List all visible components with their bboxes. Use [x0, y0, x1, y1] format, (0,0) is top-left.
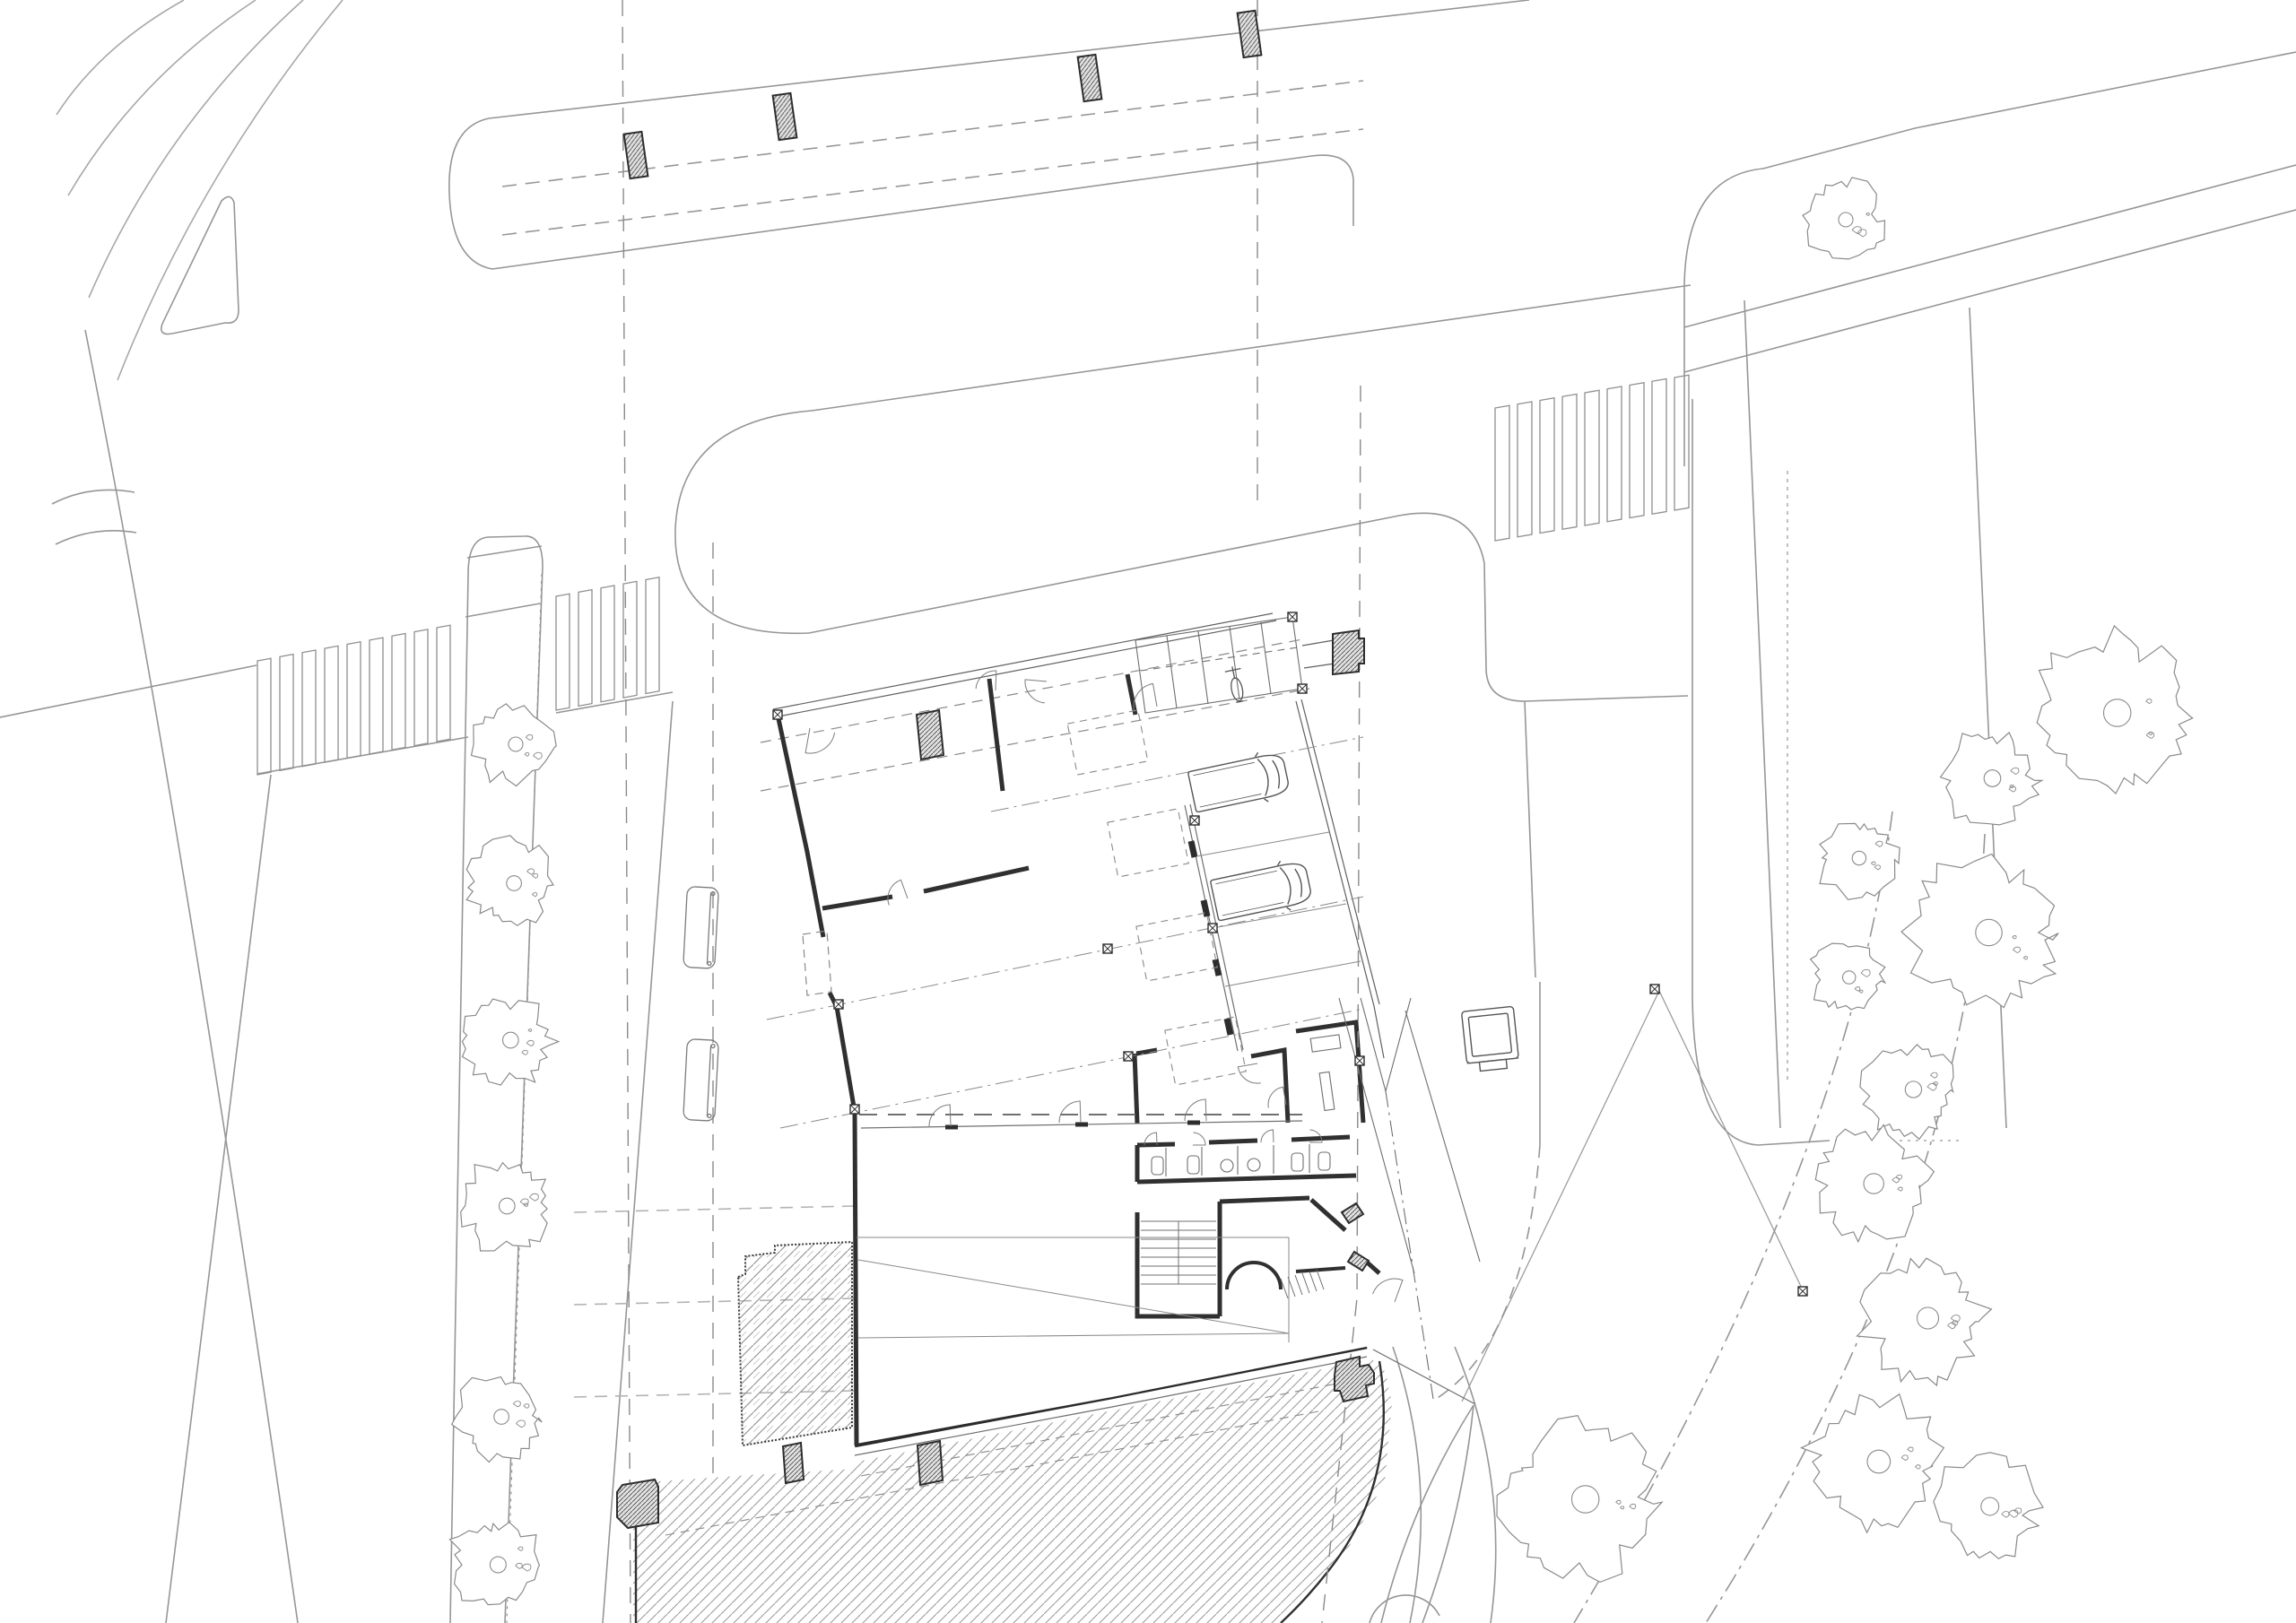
tree: [1815, 1124, 1934, 1241]
tree: [1860, 1045, 1953, 1140]
tree-canopy: [2037, 626, 2193, 794]
zebra-stripe: [257, 658, 271, 775]
zebra-stripe: [1607, 386, 1622, 522]
tree-canopy: [1901, 855, 2058, 1008]
tree-canopy: [466, 836, 553, 925]
tree: [1857, 1258, 1992, 1385]
tree-canopy: [1857, 1258, 1992, 1385]
zebra-stripe: [347, 642, 361, 759]
tree: [466, 836, 553, 925]
tree: [1901, 855, 2058, 1008]
zebra-stripe: [414, 629, 428, 746]
zebra-stripe: [280, 655, 293, 771]
zebra-stripe: [601, 586, 614, 702]
grid-marker: [1298, 684, 1307, 693]
site-plan-canvas: [0, 0, 2296, 1623]
tram-canopy-post: [1078, 55, 1102, 101]
tree-canopy: [1497, 1416, 1662, 1583]
plaza-gate-pier: [617, 1480, 658, 1528]
south-wall-pier-a: [783, 1443, 804, 1483]
street-west: [0, 330, 673, 1623]
zebra-stripe: [1674, 375, 1689, 510]
tree-canopy: [462, 999, 558, 1085]
tree: [1941, 733, 2042, 825]
zebra-stripe: [646, 577, 659, 694]
tree: [1820, 823, 1900, 899]
tree-canopy: [1941, 733, 2042, 825]
zebra-stripe: [1585, 390, 1599, 525]
grid-marker: [1650, 985, 1659, 994]
street-curves-northwest: [57, 0, 343, 380]
zebra-stripe: [1630, 383, 1644, 518]
tram-posts-layer: [624, 11, 1262, 178]
zebra-stripe: [1562, 395, 1577, 530]
grid-marker: [1355, 1056, 1364, 1065]
tree-canopy: [450, 1523, 540, 1605]
tree: [461, 1163, 548, 1251]
crosswalk-west-a: [257, 625, 450, 775]
zebra-stripe: [1518, 402, 1532, 537]
tree-canopy: [1820, 823, 1900, 899]
tree: [1497, 1416, 1662, 1583]
tree: [452, 1377, 543, 1462]
tree-canopy: [1811, 943, 1885, 1010]
grid-axis-left-1: [622, 0, 631, 1623]
tram-canopy-post: [1238, 11, 1262, 57]
tree-canopy: [1934, 1453, 2043, 1558]
zebra-stripe: [556, 594, 570, 710]
zebra-stripe: [1540, 398, 1554, 534]
tree: [450, 1523, 540, 1605]
grid-marker: [1103, 944, 1112, 953]
crosswalk-west-b: [556, 577, 659, 710]
zebra-stripe: [1495, 405, 1509, 541]
traffic-island: [161, 196, 239, 334]
zebra-stripe: [325, 646, 338, 762]
tree: [1803, 178, 1885, 259]
zebra-stripe: [370, 638, 383, 754]
tree-canopy: [472, 704, 557, 786]
canopy-pier-wing: [917, 710, 944, 759]
existing-building: [738, 1242, 852, 1445]
tram-band: [449, 0, 1529, 269]
tree-canopy: [452, 1377, 543, 1462]
cart-symbol: [1462, 1006, 1520, 1072]
grid-marker: [1190, 816, 1199, 825]
tree-canopy: [1815, 1124, 1934, 1241]
site-plan-drawing: [0, 0, 2296, 1623]
tree-canopy: [461, 1163, 548, 1251]
zebra-stripe: [1652, 379, 1666, 515]
canopy-pier-north: [1333, 630, 1364, 674]
south-wall-pier-b: [918, 1441, 943, 1485]
grid-marker: [834, 1000, 843, 1009]
zebra-stripe: [578, 590, 592, 707]
tram-canopy-post: [773, 93, 797, 140]
wing-niche: [803, 931, 831, 995]
grid-marker: [1288, 612, 1297, 621]
grid-marker: [773, 710, 782, 719]
zebra-stripe: [437, 625, 450, 742]
grid-marker: [850, 1105, 859, 1114]
zebra-stripe: [302, 650, 316, 767]
zebra-stripe: [392, 633, 405, 750]
grid-marker: [1124, 1052, 1133, 1061]
tree: [472, 704, 557, 786]
building-layer: [761, 613, 1480, 1445]
tree: [2037, 626, 2193, 794]
tree: [1934, 1453, 2043, 1558]
tree: [1811, 943, 1885, 1010]
tree-canopy: [1802, 1394, 1944, 1532]
grid-marker: [1208, 924, 1217, 933]
tree-canopy: [1803, 178, 1885, 259]
tree: [462, 999, 558, 1085]
grid-marker: [1798, 1287, 1807, 1296]
crosswalk-north-east: [1495, 375, 1689, 541]
tree: [1802, 1394, 1944, 1532]
tree-canopy: [1860, 1045, 1953, 1140]
